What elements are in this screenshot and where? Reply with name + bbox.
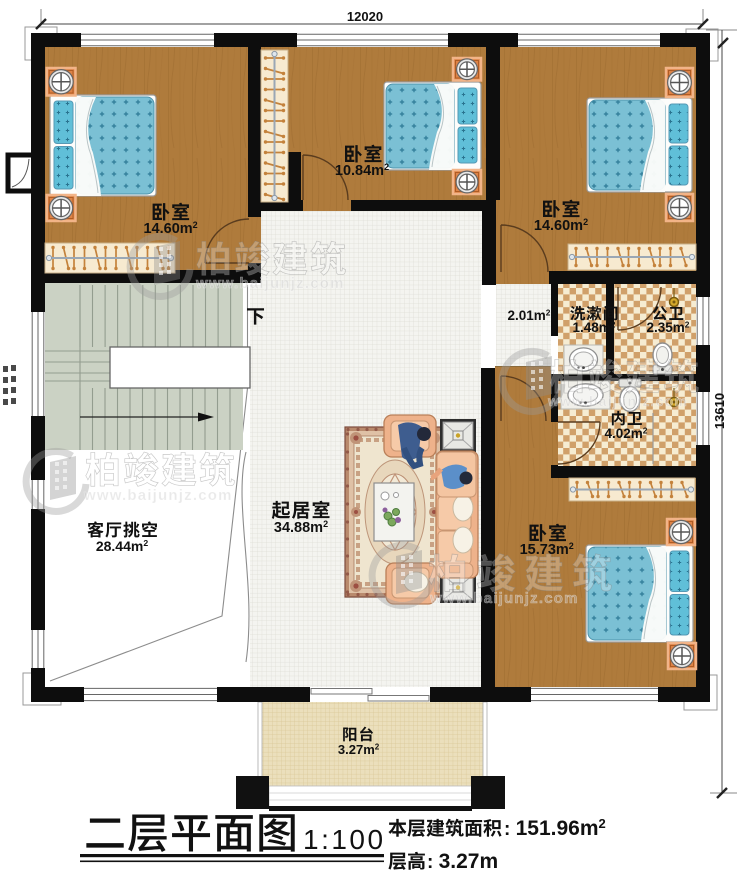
svg-text:1:100: 1:100 <box>303 824 386 855</box>
svg-text:www.baijunjz.com: www.baijunjz.com <box>547 393 688 409</box>
svg-text:www.baijunjz.com: www.baijunjz.com <box>195 275 345 292</box>
svg-text:4.02m2: 4.02m2 <box>605 425 648 441</box>
svg-text:14.60m2: 14.60m2 <box>143 220 197 237</box>
svg-text:: 3.27m: : 3.27m <box>427 850 498 873</box>
svg-text:15.73m2: 15.73m2 <box>520 541 574 558</box>
svg-text:28.44m2: 28.44m2 <box>96 538 148 554</box>
svg-text:: 151.96m2: : 151.96m2 <box>504 816 606 840</box>
svg-text:www.baijunjz.com: www.baijunjz.com <box>83 487 233 504</box>
svg-text:12020: 12020 <box>347 9 383 24</box>
svg-text:13610: 13610 <box>712 393 727 429</box>
svg-text:14.60m2: 14.60m2 <box>534 217 588 234</box>
svg-text:34.88m2: 34.88m2 <box>274 519 328 536</box>
svg-text:3.27m2: 3.27m2 <box>338 742 380 757</box>
svg-text:10.84m2: 10.84m2 <box>335 162 389 179</box>
svg-text:www.baijunjz.com: www.baijunjz.com <box>429 590 579 607</box>
svg-text:1.48m2: 1.48m2 <box>573 319 616 335</box>
svg-text:2.35m2: 2.35m2 <box>647 319 690 335</box>
svg-text:2.01m2: 2.01m2 <box>508 307 551 323</box>
